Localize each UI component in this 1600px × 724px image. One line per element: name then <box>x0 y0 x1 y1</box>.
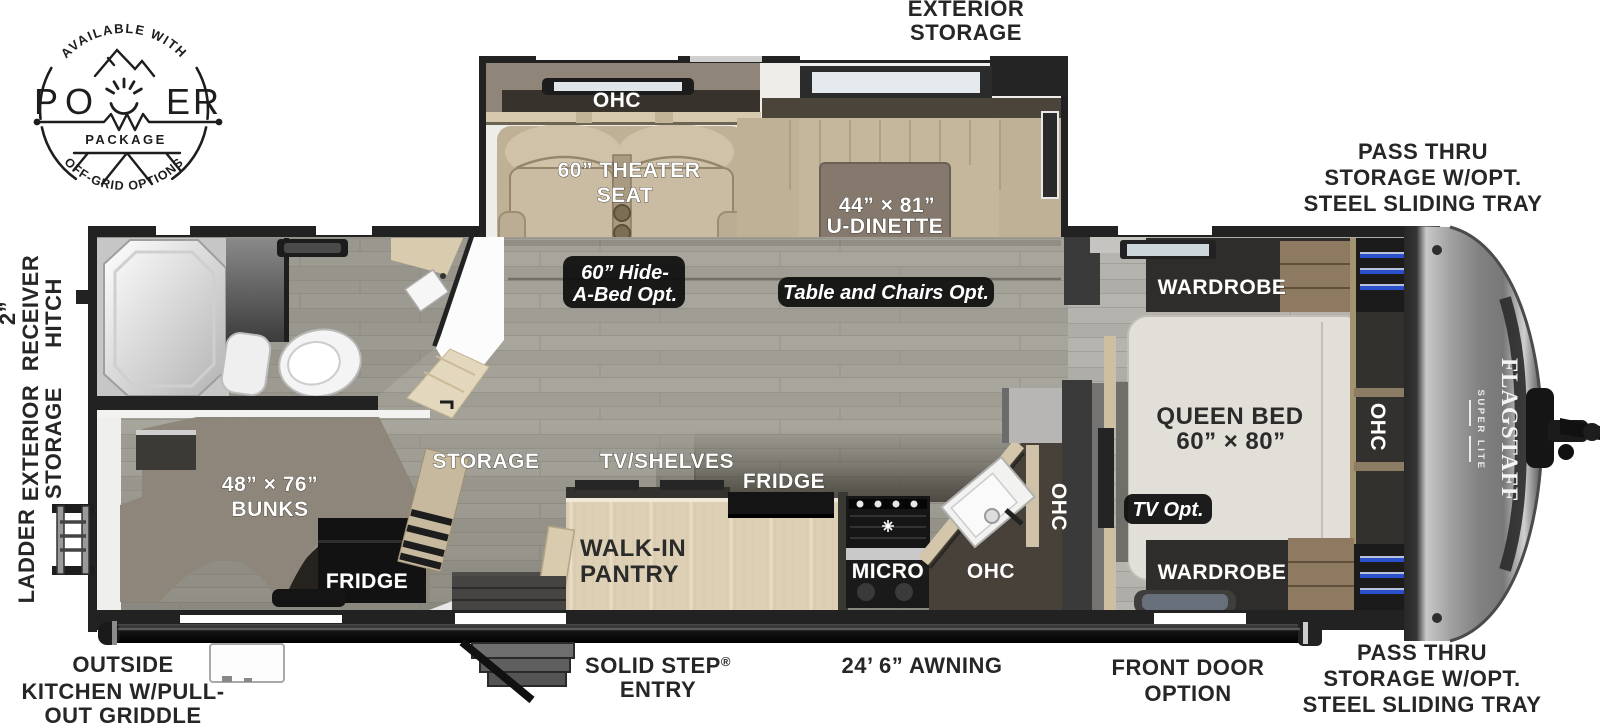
svg-text:EXTERIOR: EXTERIOR <box>18 385 43 501</box>
svg-text:LADDER: LADDER <box>14 509 39 604</box>
svg-text:R: R <box>193 81 219 122</box>
svg-text:FRONT DOOR: FRONT DOOR <box>1112 655 1265 680</box>
svg-text:FLAGSTAFF: FLAGSTAFF <box>1497 358 1522 502</box>
svg-text:44” × 81”: 44” × 81” <box>839 194 935 217</box>
svg-text:OHC: OHC <box>593 89 641 112</box>
svg-text:STEEL SLIDING TRAY: STEEL SLIDING TRAY <box>1303 692 1542 717</box>
svg-text:WARDROBE: WARDROBE <box>1158 276 1287 299</box>
svg-text:OUT GRIDDLE: OUT GRIDDLE <box>44 703 201 724</box>
svg-text:Table and Chairs Opt.: Table and Chairs Opt. <box>783 282 989 304</box>
svg-text:STORAGE: STORAGE <box>41 387 66 499</box>
svg-text:PASS THRU: PASS THRU <box>1357 640 1487 665</box>
svg-text:PASS THRU: PASS THRU <box>1358 139 1488 164</box>
svg-text:KITCHEN W/PULL-: KITCHEN W/PULL- <box>21 679 224 704</box>
svg-text:ENTRY: ENTRY <box>620 677 696 702</box>
svg-text:STORAGE: STORAGE <box>433 450 540 473</box>
svg-text:STEEL SLIDING TRAY: STEEL SLIDING TRAY <box>1304 191 1543 216</box>
svg-text:BUNKS: BUNKS <box>231 498 308 521</box>
svg-text:STORAGE: STORAGE <box>910 20 1022 45</box>
svg-text:PANTRY: PANTRY <box>580 561 679 588</box>
svg-text:SEAT: SEAT <box>597 184 653 207</box>
svg-text:E: E <box>166 81 190 122</box>
svg-text:A-Bed Opt.: A-Bed Opt. <box>572 284 677 306</box>
svg-text:OHC: OHC <box>1366 403 1389 451</box>
svg-text:OHC: OHC <box>1047 483 1070 531</box>
svg-text:24’ 6” AWNING: 24’ 6” AWNING <box>842 653 1003 678</box>
svg-text:EXTERIOR: EXTERIOR <box>908 0 1024 21</box>
svg-text:STORAGE W/OPT.: STORAGE W/OPT. <box>1323 666 1520 691</box>
svg-text:TV Opt.: TV Opt. <box>1132 499 1203 521</box>
svg-text:TV/SHELVES: TV/SHELVES <box>600 450 734 473</box>
svg-text:OPTION: OPTION <box>1144 681 1231 706</box>
svg-text:O: O <box>65 81 93 122</box>
svg-text:60” Hide-: 60” Hide- <box>581 262 669 284</box>
svg-text:U-DINETTE: U-DINETTE <box>827 215 944 238</box>
svg-text:HITCH: HITCH <box>41 278 66 348</box>
svg-text:60” × 80”: 60” × 80” <box>1176 428 1285 455</box>
svg-text:MICRO: MICRO <box>852 560 925 583</box>
svg-text:WALK-IN: WALK-IN <box>580 535 686 562</box>
svg-text:WARDROBE: WARDROBE <box>1158 561 1287 584</box>
svg-text:QUEEN BED: QUEEN BED <box>1156 403 1303 430</box>
svg-text:STORAGE W/OPT.: STORAGE W/OPT. <box>1324 165 1521 190</box>
svg-text:P: P <box>34 81 58 122</box>
svg-text:SOLID STEP®: SOLID STEP® <box>585 653 731 678</box>
svg-text:2”: 2” <box>0 301 20 325</box>
svg-text:RECEIVER: RECEIVER <box>18 255 43 371</box>
svg-text:SUPER LITE: SUPER LITE <box>1475 390 1486 471</box>
svg-text:OUTSIDE: OUTSIDE <box>72 652 173 677</box>
svg-text:60” THEATER: 60” THEATER <box>558 159 701 182</box>
svg-text:48” × 76”: 48” × 76” <box>222 473 318 496</box>
svg-text:FRIDGE: FRIDGE <box>326 570 408 593</box>
svg-text:PACKAGE: PACKAGE <box>85 132 167 147</box>
svg-text:OHC: OHC <box>967 560 1015 583</box>
svg-text:FRIDGE: FRIDGE <box>743 470 825 493</box>
